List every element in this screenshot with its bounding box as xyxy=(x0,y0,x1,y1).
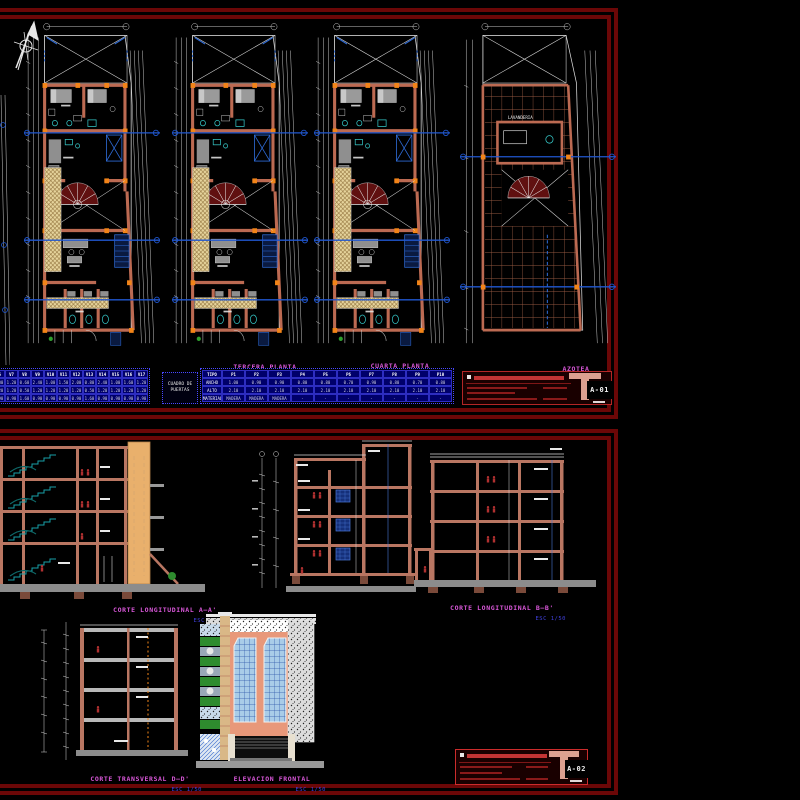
floor-plan-3-cuarta xyxy=(314,18,450,354)
elevator-shaft xyxy=(128,442,150,584)
stairs xyxy=(8,455,56,580)
doors-schedule-table: TIPOP1P2P3P4P5P6P7P8P9P10ANCHO1.000.900.… xyxy=(200,368,454,404)
section-b-scale: ESC 1/50 xyxy=(432,616,572,623)
sheet-number: A-02 xyxy=(565,760,588,778)
elevation-scale: ESC 1/50 xyxy=(212,787,332,794)
titleblock-title-bar xyxy=(474,376,564,380)
titleblock-bullet xyxy=(460,753,464,757)
titleblock-a02: A-02 xyxy=(455,749,588,785)
titleblock-bullet xyxy=(467,375,471,379)
titleblock-a01: A-01 xyxy=(462,371,612,405)
balcony-strip xyxy=(200,624,220,729)
doors-schedule-label: CUADRO DE PUERTAS xyxy=(162,372,198,404)
windows-schedule-table: V6V7V8V9V10V11V12V13V14V15V16V171.001.20… xyxy=(0,368,150,404)
section-b-title: CORTE LONGITUDINAL B—B' xyxy=(450,604,554,612)
floor-plan-1 xyxy=(24,18,160,354)
section-t-scale: ESC 1/50 xyxy=(72,787,208,794)
section-t-title: CORTE TRANSVERSAL D—D' xyxy=(90,775,189,783)
elevation-label: ELEVACION FRONTAL ESC 1/50 xyxy=(212,766,332,794)
left-edge-plan-fragment xyxy=(0,95,10,365)
floor-plan-4-azotea xyxy=(460,18,616,354)
section-b-label: CORTE LONGITUDINAL B—B' ESC 1/50 xyxy=(432,595,572,623)
elevation-title: ELEVACION FRONTAL xyxy=(234,775,311,783)
elevation-frontal xyxy=(194,608,328,770)
section-middle xyxy=(248,436,416,602)
floor-plan-2-tercera xyxy=(172,18,308,354)
section-longitudinal-b xyxy=(414,436,600,596)
sheet-number: A-01 xyxy=(587,381,612,399)
section-t-label: CORTE TRANSVERSAL D—D' ESC 1/50 xyxy=(72,766,208,794)
cad-drawing-canvas: LAVANDERIA xyxy=(0,0,800,800)
titleblock-title-bar xyxy=(467,754,547,758)
section-longitudinal-a xyxy=(0,436,205,602)
section-transversal xyxy=(36,612,196,770)
